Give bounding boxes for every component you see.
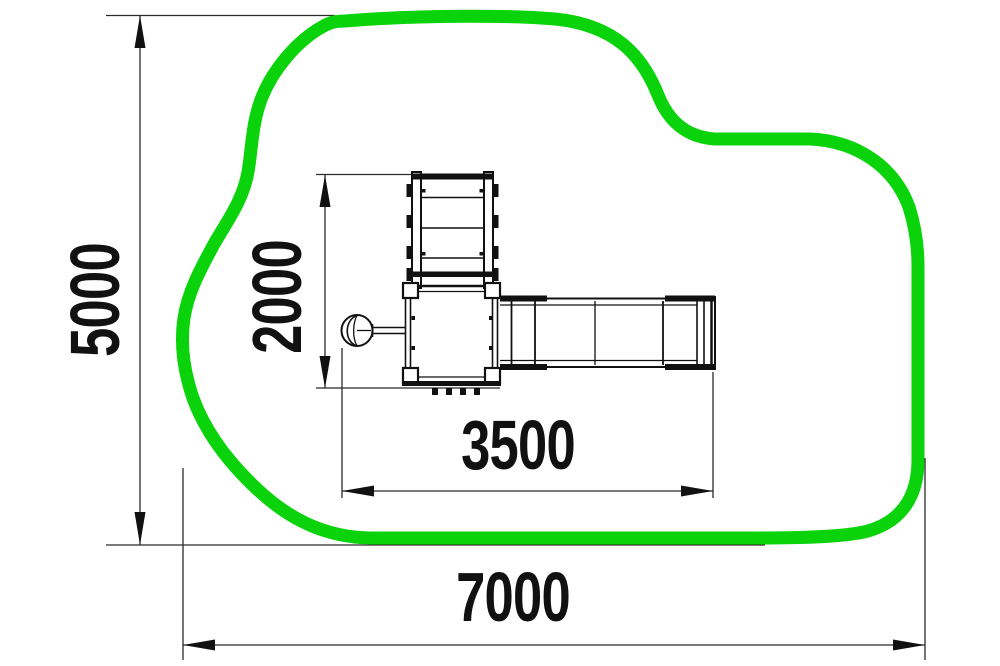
steering-wheel-top-view bbox=[342, 315, 406, 346]
arrow-left-icon bbox=[342, 486, 374, 497]
dimension-lines bbox=[106, 16, 925, 661]
arrow-right-icon bbox=[893, 640, 925, 651]
arrow-up-icon bbox=[135, 16, 146, 49]
dimension-5000 bbox=[106, 16, 765, 546]
arrow-right-icon bbox=[681, 486, 713, 497]
slide-top-view bbox=[500, 296, 715, 371]
playground-structure bbox=[342, 172, 716, 395]
dimension-7000 bbox=[183, 458, 925, 660]
arrow-up-icon bbox=[320, 175, 331, 207]
plan-drawing bbox=[0, 0, 1000, 666]
platform-top-view bbox=[402, 283, 501, 395]
dimension-2000 bbox=[316, 175, 500, 389]
arrow-left-icon bbox=[183, 640, 215, 651]
dimension-3500 bbox=[342, 348, 713, 498]
ladder-top-view bbox=[407, 172, 499, 288]
arrow-down-icon bbox=[320, 356, 331, 388]
plan-drawing-canvas: 5000 2000 3500 7000 bbox=[0, 0, 1000, 666]
safety-zone-outline bbox=[182, 16, 918, 538]
arrow-down-icon bbox=[135, 512, 146, 545]
